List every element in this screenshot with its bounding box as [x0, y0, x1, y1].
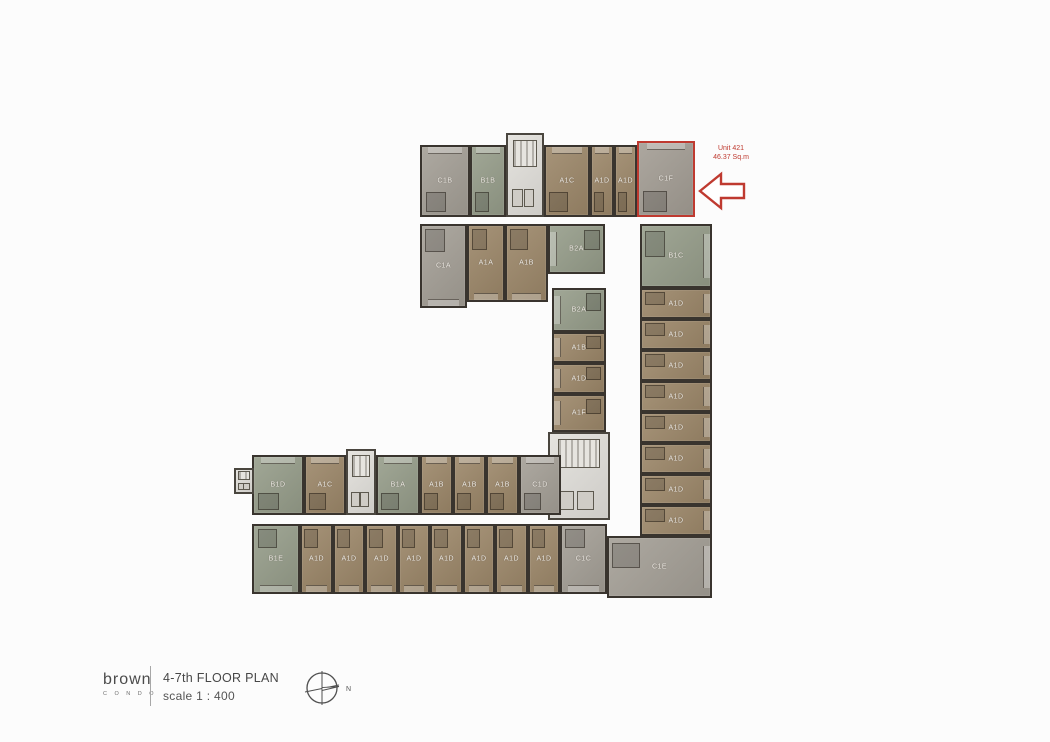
unit-label: A1F — [572, 410, 586, 417]
stair-core — [234, 468, 254, 494]
unit-label: A1B — [519, 260, 534, 267]
unit-label: A1D — [668, 455, 683, 462]
unit-a1d: A1D — [640, 288, 712, 319]
unit-a1d: A1D — [640, 350, 712, 381]
unit-b2a: B2A — [548, 224, 605, 274]
unit-label: C1F — [659, 176, 674, 183]
unit-label: A1D — [374, 556, 389, 563]
unit-label: B2A — [569, 246, 584, 253]
unit-label: A1B — [572, 344, 587, 351]
unit-label: B2A — [572, 307, 587, 314]
unit-c1b: C1B — [420, 145, 470, 217]
unit-label: A1D — [309, 556, 324, 563]
unit-label: C1A — [436, 263, 451, 270]
unit-label: A1D — [668, 393, 683, 400]
unit-c1f: C1F — [637, 141, 695, 217]
compass-icon: N — [302, 666, 346, 715]
highlight-arrow-icon — [697, 170, 747, 212]
unit-b2a: B2A — [552, 288, 606, 332]
highlight-unit-number: Unit 421 — [698, 144, 764, 153]
unit-label: A1D — [668, 300, 683, 307]
brand-logo: brown C O N D O — [103, 672, 157, 697]
unit-a1d: A1D — [495, 524, 528, 594]
unit-a1c: A1C — [544, 145, 590, 217]
unit-a1d: A1D — [590, 145, 614, 217]
unit-label: A1D — [439, 556, 454, 563]
unit-a1d: A1D — [528, 524, 560, 594]
unit-a1d: A1D — [640, 319, 712, 350]
unit-label: A1D — [668, 424, 683, 431]
plan-title: 4-7th FLOOR PLAN — [163, 671, 279, 685]
unit-label: A1D — [618, 178, 633, 185]
unit-label: A1A — [479, 260, 494, 267]
unit-label: C1D — [532, 482, 548, 489]
unit-label: A1D — [594, 178, 609, 185]
unit-a1d: A1D — [430, 524, 463, 594]
unit-a1d: A1D — [552, 363, 606, 394]
unit-a1d: A1D — [398, 524, 430, 594]
unit-label: A1D — [406, 556, 421, 563]
unit-a1b: A1B — [486, 455, 519, 515]
plan-scale: scale 1 : 400 — [163, 689, 279, 703]
unit-a1f: A1F — [552, 394, 606, 432]
highlight-unit-area: 46.37 Sq.m — [698, 153, 764, 162]
unit-a1c: A1C — [304, 455, 346, 515]
stair-core — [506, 133, 544, 217]
unit-label: B1C — [668, 253, 683, 260]
unit-label: C1E — [652, 564, 667, 571]
unit-label: A1D — [668, 331, 683, 338]
unit-label: A1D — [536, 556, 551, 563]
unit-a1b: A1B — [453, 455, 486, 515]
unit-b1d: B1D — [252, 455, 304, 515]
unit-b1e: B1E — [252, 524, 300, 594]
unit-a1b: A1B — [552, 332, 606, 363]
footer: brown C O N D O 4-7th FLOOR PLAN scale 1… — [0, 660, 1050, 720]
unit-label: B1A — [391, 482, 406, 489]
unit-label: A1C — [559, 178, 574, 185]
brand-subtitle: C O N D O — [103, 691, 157, 697]
unit-label: B1D — [270, 482, 285, 489]
unit-a1d: A1D — [640, 412, 712, 443]
plan-title-block: 4-7th FLOOR PLAN scale 1 : 400 — [163, 671, 279, 703]
footer-divider — [150, 666, 151, 706]
unit-a1d: A1D — [640, 474, 712, 505]
unit-b1a: B1A — [376, 455, 420, 515]
brand-name: brown — [103, 672, 157, 688]
unit-label: A1C — [317, 482, 332, 489]
unit-a1d: A1D — [640, 505, 712, 536]
unit-c1e: C1E — [607, 536, 712, 598]
unit-label: B1B — [481, 178, 496, 185]
unit-label: A1D — [341, 556, 356, 563]
unit-label: C1B — [437, 178, 452, 185]
unit-a1d: A1D — [640, 443, 712, 474]
unit-label: A1B — [462, 482, 477, 489]
unit-label: A1D — [668, 362, 683, 369]
unit-c1a: C1A — [420, 224, 467, 308]
unit-label: A1D — [668, 517, 683, 524]
unit-label: A1B — [495, 482, 510, 489]
unit-a1d: A1D — [463, 524, 495, 594]
unit-label: A1D — [471, 556, 486, 563]
floor-plan-canvas: C1BB1BA1CA1DA1DC1FC1AA1AA1BB2AB1CB2AA1BA… — [0, 0, 1050, 742]
unit-a1d: A1D — [300, 524, 333, 594]
unit-a1d: A1D — [333, 524, 365, 594]
unit-label: A1D — [504, 556, 519, 563]
unit-label: B1E — [269, 556, 284, 563]
unit-label: A1D — [571, 375, 586, 382]
compass-north-label: N — [346, 686, 351, 693]
stair-core — [346, 449, 376, 515]
unit-label: A1D — [668, 486, 683, 493]
unit-a1d: A1D — [640, 381, 712, 412]
unit-c1d: C1D — [519, 455, 561, 515]
highlight-annotation: Unit 421 46.37 Sq.m — [698, 144, 764, 163]
unit-label: C1C — [576, 556, 592, 563]
unit-a1b: A1B — [505, 224, 548, 302]
unit-a1d: A1D — [614, 145, 637, 217]
unit-b1b: B1B — [470, 145, 506, 217]
unit-c1c: C1C — [560, 524, 607, 594]
unit-a1a: A1A — [467, 224, 505, 302]
unit-b1c: B1C — [640, 224, 712, 288]
unit-a1d: A1D — [365, 524, 398, 594]
unit-a1b: A1B — [420, 455, 453, 515]
unit-label: A1B — [429, 482, 444, 489]
